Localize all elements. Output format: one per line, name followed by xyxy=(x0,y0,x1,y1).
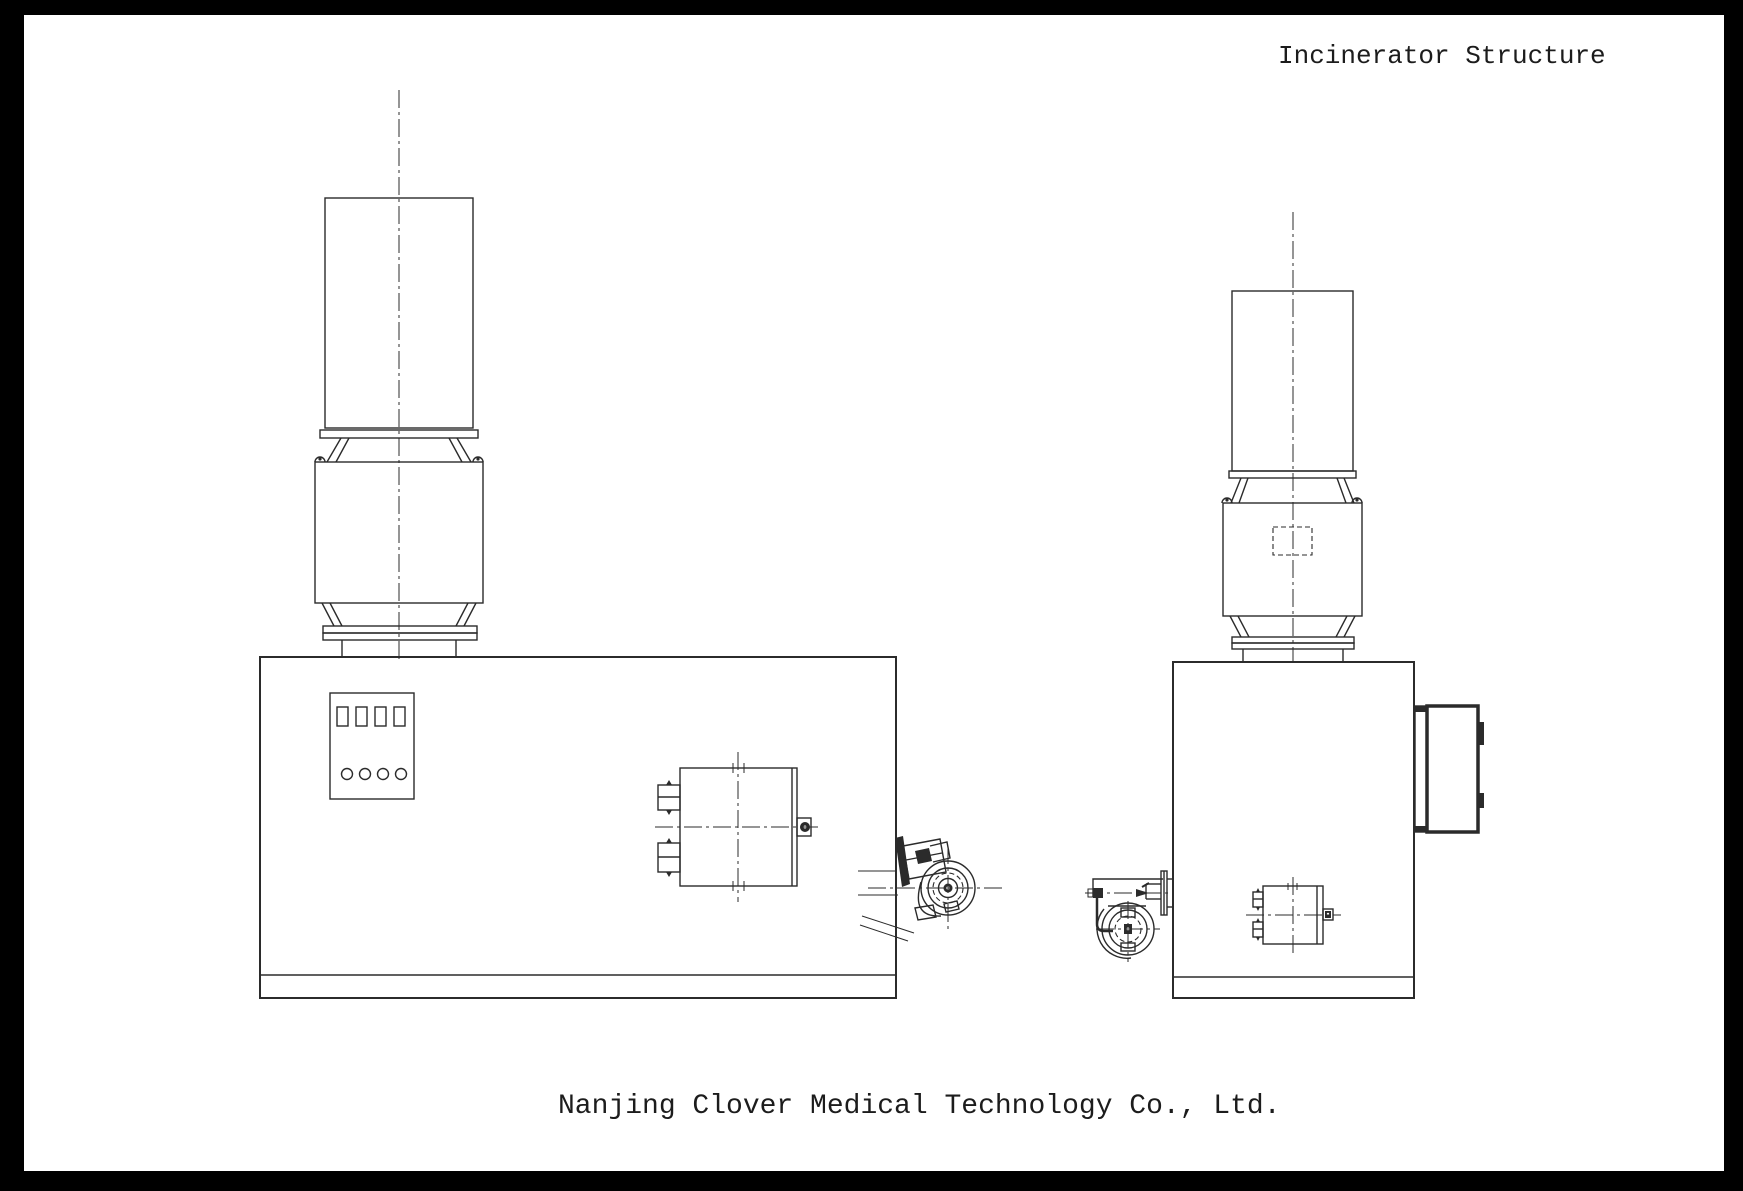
panel-indicator xyxy=(378,769,389,780)
panel-indicator xyxy=(396,769,407,780)
drawing-sheet: Incinerator Structure Nanjing Clover Med… xyxy=(24,15,1724,1171)
panel-switch xyxy=(356,707,367,726)
panel-switch xyxy=(375,707,386,726)
company-name: Nanjing Clover Medical Technology Co., L… xyxy=(558,1091,1281,1122)
front-view xyxy=(260,90,1002,998)
burner-fan-assembly xyxy=(858,836,1002,941)
engineering-drawing xyxy=(24,15,1724,1171)
side-lifting-lugs xyxy=(1222,498,1362,503)
door-hinge xyxy=(1478,722,1484,745)
front-flange-upper xyxy=(323,626,477,633)
page-title: Incinerator Structure xyxy=(1278,41,1606,71)
flow-arrow xyxy=(1136,889,1149,897)
panel-indicator xyxy=(342,769,353,780)
fan-motor-box xyxy=(915,848,932,864)
side-view xyxy=(1085,212,1484,998)
incinerator-drawing-page: { "page": { "title": "Incinerator Struct… xyxy=(0,0,1743,1191)
panel-indicator xyxy=(360,769,371,780)
fan-mounting-plate xyxy=(895,836,910,887)
front-flange-lower xyxy=(323,633,477,640)
burner-port-box xyxy=(1246,877,1341,953)
charging-door xyxy=(655,752,822,902)
panel-switch xyxy=(394,707,405,726)
door-hinge xyxy=(1478,793,1484,808)
panel-switch xyxy=(337,707,348,726)
side-door-panel xyxy=(1427,706,1478,832)
oil-burner xyxy=(1085,871,1174,962)
fuel-pipe xyxy=(1097,898,1113,931)
control-panel xyxy=(330,693,414,799)
side-door xyxy=(1415,706,1484,832)
